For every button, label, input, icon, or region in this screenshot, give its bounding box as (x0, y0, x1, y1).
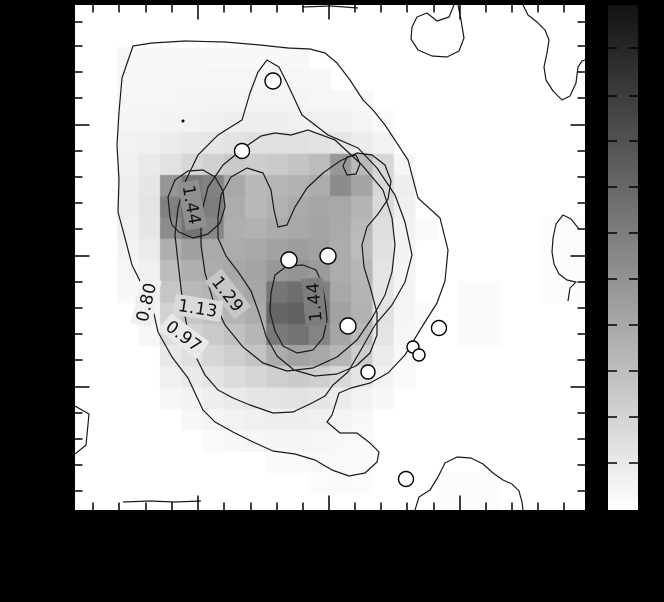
contour-label-group: 1.44 (301, 277, 327, 327)
source-marker (281, 252, 297, 268)
contour-label-group: 0.97 (158, 313, 209, 359)
colorbar-ticks (608, 5, 638, 510)
source-marker (361, 365, 375, 379)
figure-canvas: 1.441.441.291.130.970.80 (0, 0, 664, 602)
contour-line-1.13 (201, 130, 395, 371)
contour-line-0.80 (552, 215, 579, 301)
contour-label: 0.80 (133, 281, 161, 324)
contour-line-0.80 (415, 457, 523, 510)
contour-line-0.80 (303, 6, 358, 8)
contour-line-0.97 (175, 60, 412, 413)
source-marker (399, 472, 414, 487)
colorbar (606, 3, 640, 512)
contour-label-group: 1.44 (177, 180, 207, 231)
source-marker (432, 321, 447, 336)
point-dot (182, 120, 185, 123)
source-marker (413, 349, 425, 361)
contour-line-0.80 (523, 5, 585, 100)
contour-overlay: 1.441.441.291.130.970.80 (75, 5, 585, 510)
contour-line-0.80 (123, 501, 201, 502)
contour-plot-panel: 1.441.441.291.130.970.80 (73, 3, 587, 512)
source-marker (235, 144, 250, 159)
source-marker (265, 73, 281, 89)
source-marker (340, 318, 356, 334)
contour-label: 1.44 (303, 281, 326, 322)
contour-label: 1.44 (178, 184, 205, 227)
contour-label-group: 0.80 (130, 276, 162, 328)
contour-label-group: 1.13 (173, 294, 224, 323)
source-marker (320, 248, 336, 264)
contour-line-0.80 (411, 5, 464, 57)
